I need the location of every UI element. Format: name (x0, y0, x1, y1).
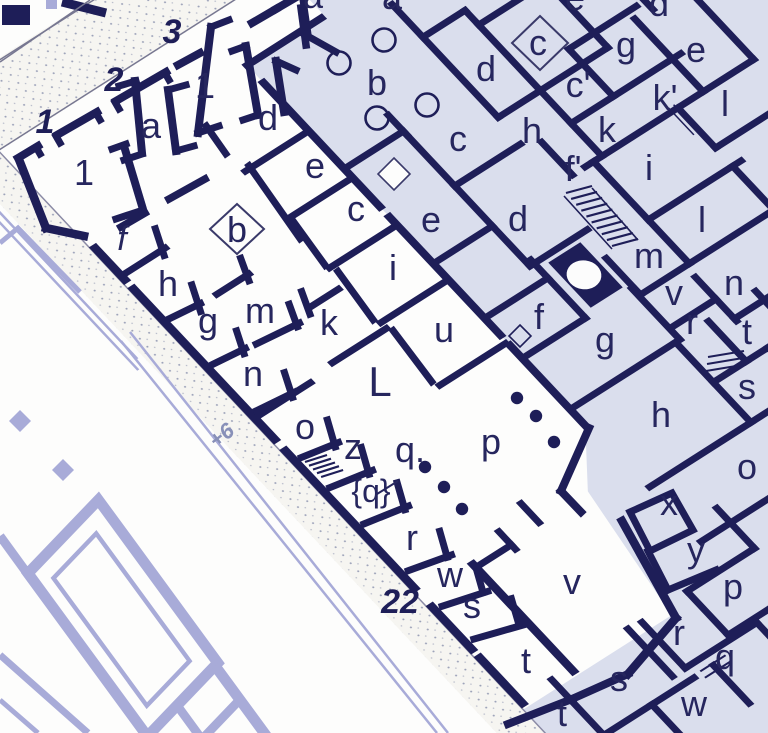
svg-text:p: p (481, 421, 501, 462)
svg-text:d: d (258, 97, 278, 138)
svg-text:1: 1 (195, 65, 215, 106)
svg-text:c: c (449, 118, 467, 159)
svg-text:s: s (463, 585, 481, 626)
svg-text:m: m (634, 235, 664, 276)
svg-text:w: w (436, 554, 464, 595)
svg-text:v: v (563, 561, 581, 602)
svg-text:f: f (534, 296, 545, 337)
svg-text:t: t (521, 640, 531, 681)
svg-text:a: a (303, 0, 324, 16)
svg-text:u: u (434, 309, 454, 350)
svg-text:k: k (320, 302, 339, 343)
svg-text:i: i (645, 147, 653, 188)
svg-text:22: 22 (380, 583, 419, 621)
svg-text:h: h (522, 110, 542, 151)
svg-text:d: d (476, 48, 496, 89)
svg-text:2: 2 (104, 61, 124, 99)
svg-text:r: r (673, 612, 685, 653)
svg-text:b: b (367, 62, 387, 103)
svg-text:a: a (141, 105, 162, 146)
svg-text:f': f' (565, 148, 582, 189)
svg-text:b: b (227, 209, 247, 250)
svg-text:c': c' (566, 64, 591, 105)
svg-text:o: o (737, 446, 757, 487)
svg-text:x: x (660, 482, 678, 523)
svg-text:i: i (389, 247, 397, 288)
svg-text:e: e (305, 145, 325, 186)
svg-text:n: n (243, 353, 263, 394)
svg-text:e: e (686, 29, 706, 70)
svg-text:h: h (158, 263, 178, 304)
svg-text:c: c (529, 22, 547, 63)
svg-text:c: c (347, 188, 365, 229)
svg-text:v: v (665, 272, 683, 313)
svg-text:a: a (382, 0, 403, 17)
svg-text:o: o (295, 406, 315, 447)
svg-text:z: z (344, 426, 362, 467)
svg-text:q.: q. (395, 429, 425, 470)
svg-text:1: 1 (74, 152, 94, 193)
svg-text:r: r (686, 301, 698, 342)
svg-text:t: t (557, 693, 567, 733)
svg-text:r: r (406, 517, 418, 558)
svg-text:t: t (742, 311, 752, 352)
svg-text:{q}: {q} (351, 473, 390, 509)
svg-text:k: k (598, 109, 617, 150)
svg-text:L: L (368, 358, 391, 405)
svg-text:k': k' (653, 77, 678, 118)
svg-text:1: 1 (36, 103, 55, 141)
svg-text:3: 3 (163, 13, 182, 51)
svg-text:p: p (723, 566, 743, 607)
svg-text:g: g (595, 319, 615, 360)
svg-text:n: n (724, 262, 744, 303)
svg-text:s: s (738, 366, 756, 407)
svg-text:l: l (721, 83, 729, 124)
svg-text:g: g (198, 300, 218, 341)
svg-text:d: d (649, 0, 669, 24)
svg-text:g: g (616, 24, 636, 65)
svg-text:m: m (245, 290, 275, 331)
svg-text:w: w (680, 683, 708, 724)
svg-text:e: e (421, 199, 441, 240)
svg-text:d: d (508, 198, 528, 239)
svg-text:s: s (610, 658, 628, 699)
svg-text:e: e (565, 0, 585, 18)
svg-text:y: y (687, 529, 705, 570)
svg-text:l: l (698, 199, 706, 240)
svg-text:q: q (715, 636, 735, 677)
svg-text:h: h (651, 394, 671, 435)
